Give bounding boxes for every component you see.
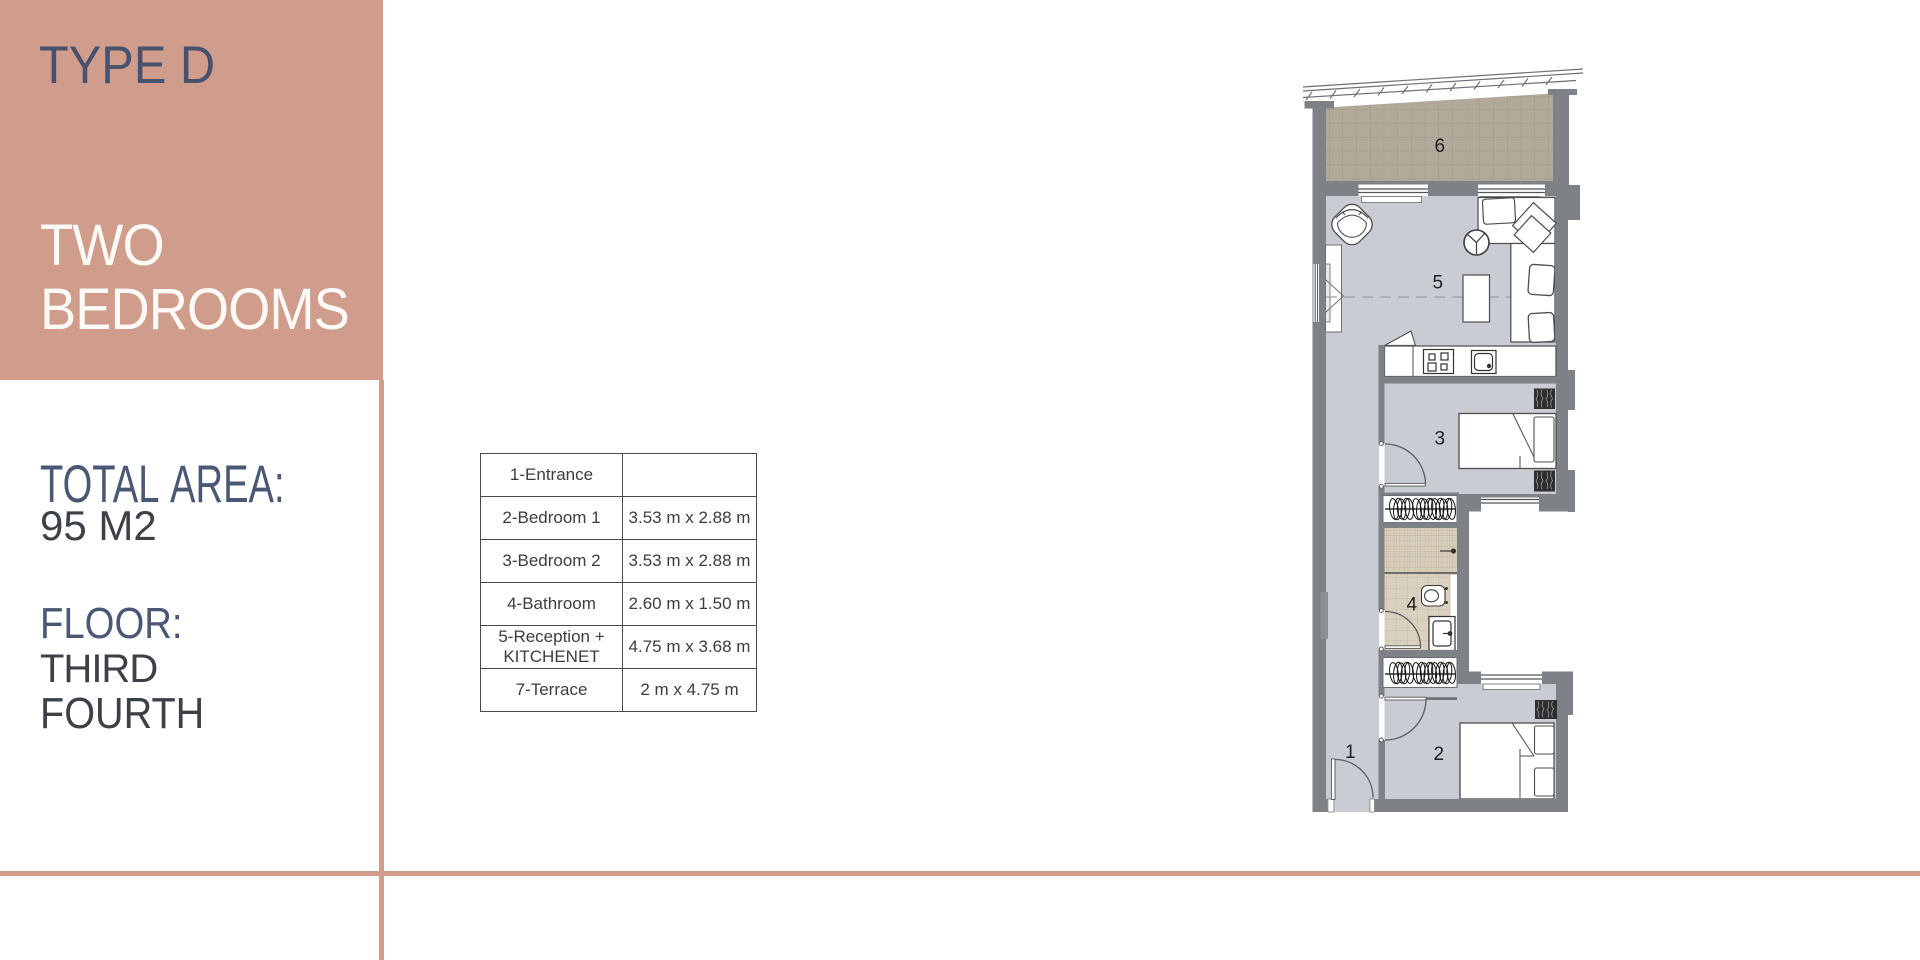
svg-text:3: 3 [1435,429,1446,450]
svg-text:1: 1 [1345,742,1356,763]
svg-text:6: 6 [1435,136,1446,157]
svg-text:5: 5 [1433,273,1444,294]
svg-text:4: 4 [1407,595,1418,616]
svg-text:2: 2 [1434,744,1445,765]
